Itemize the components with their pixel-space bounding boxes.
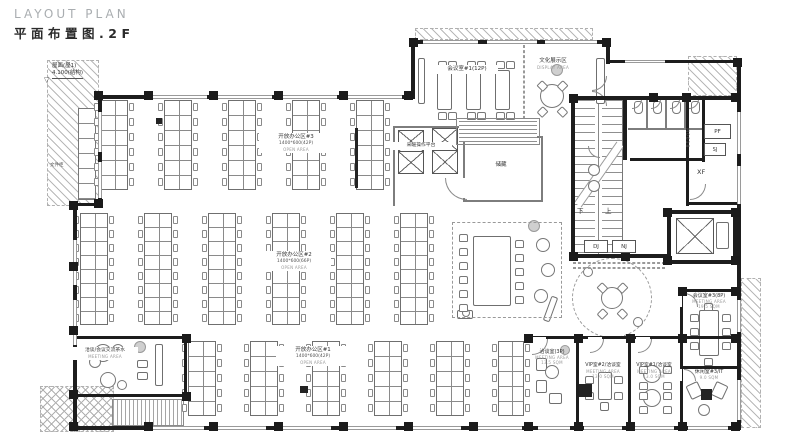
table (137, 372, 148, 380)
column (524, 334, 533, 343)
column (69, 326, 78, 335)
chair (109, 300, 114, 308)
wall (667, 260, 739, 264)
shaft-tag-dj: DJ (584, 240, 608, 253)
chair (722, 342, 731, 350)
partition-wall (541, 136, 543, 202)
door-gap (463, 178, 465, 198)
cross-cell (433, 151, 457, 173)
chair (138, 216, 143, 224)
chair (556, 106, 568, 118)
table (600, 402, 609, 411)
partition-wall (393, 126, 463, 128)
wall (623, 96, 627, 160)
room-label-open2: 开放办公区#2 1400*600(66P) OPEN AREA (257, 251, 331, 271)
chair (193, 148, 198, 156)
stair-up-label: 上 (605, 205, 612, 215)
column (649, 93, 658, 102)
desk-strip (498, 341, 524, 416)
chair (222, 163, 227, 171)
column (404, 91, 413, 100)
chair (222, 178, 227, 186)
desk-strip (436, 341, 464, 416)
chair (237, 216, 242, 224)
table (437, 70, 452, 110)
column (524, 422, 533, 431)
chair (614, 392, 623, 400)
desk-strip (144, 213, 172, 325)
chair (193, 178, 198, 186)
partition-wall (628, 128, 706, 130)
chair (173, 272, 178, 280)
chair (429, 244, 434, 252)
room-name: 文化展示区 (522, 58, 584, 65)
column (339, 422, 348, 431)
chair (257, 118, 262, 126)
window (737, 380, 741, 420)
chair (301, 230, 306, 238)
chair (492, 389, 497, 397)
notes-block (456, 118, 540, 145)
chair (173, 244, 178, 252)
chair (217, 404, 222, 412)
chair (429, 230, 434, 238)
chair (465, 404, 470, 412)
chair (138, 300, 143, 308)
chair (722, 328, 731, 336)
chair (403, 344, 408, 352)
chair (394, 300, 399, 308)
wall (630, 158, 704, 161)
room-name: 采暖操作平台 (392, 143, 450, 149)
roof-label: 屋面(屋1) (52, 63, 83, 70)
chair (286, 103, 291, 111)
chair (663, 392, 672, 400)
column (182, 334, 191, 343)
chair (279, 404, 284, 412)
chair (639, 382, 648, 390)
room-name-en: OPEN AREA (259, 265, 329, 270)
column (69, 422, 78, 431)
chair (129, 103, 134, 111)
chair (394, 244, 399, 252)
column (69, 201, 78, 210)
chair (266, 314, 271, 322)
chair (129, 118, 134, 126)
table (716, 222, 729, 249)
column (182, 392, 191, 401)
chair (690, 314, 699, 322)
table (710, 381, 728, 400)
room-label-talk: 洽谈室(3P) MEETING AREA 13.5 SQM (527, 349, 577, 365)
room-area: 13.0 SQM (577, 374, 629, 379)
window (737, 166, 741, 204)
chair (244, 359, 249, 367)
door-gap (636, 337, 650, 339)
roof-level-value: 4.100(结构) (52, 70, 83, 79)
window (487, 40, 537, 44)
column (209, 422, 218, 431)
chair (266, 230, 271, 238)
window (279, 426, 331, 430)
chair (430, 374, 435, 382)
chair (492, 359, 497, 367)
chair (158, 133, 163, 141)
chair (202, 272, 207, 280)
solid-fixture (701, 389, 712, 400)
desk-strip (374, 341, 402, 416)
chair (244, 389, 249, 397)
chair (109, 314, 114, 322)
chair (385, 163, 390, 171)
column (144, 91, 153, 100)
wall (628, 336, 631, 428)
chair (429, 286, 434, 294)
room-label-open1: 开放办公区#1 1400*600(42P) OPEN AREA (276, 346, 350, 366)
chair (465, 359, 470, 367)
room-name-en: OPEN AREA (278, 360, 348, 365)
chair (330, 314, 335, 322)
table (699, 310, 719, 356)
room-label-culture: 文化展示区 DISPLAY AREA (522, 58, 584, 70)
dashed-line (452, 222, 562, 318)
wall (680, 289, 683, 428)
window (152, 426, 204, 430)
chair (403, 374, 408, 382)
title-english: LAYOUT PLAN (14, 7, 129, 21)
desk-strip (208, 213, 236, 325)
window (217, 95, 272, 99)
window (538, 426, 570, 430)
chair (202, 244, 207, 252)
chair (217, 374, 222, 382)
column (678, 334, 687, 343)
chair (301, 300, 306, 308)
chair (222, 133, 227, 141)
chair (237, 272, 242, 280)
column (404, 422, 413, 431)
chair (266, 300, 271, 308)
window (474, 426, 522, 430)
chair (330, 286, 335, 294)
level-marker-icon: ▽ (44, 76, 49, 85)
chair (182, 404, 187, 412)
window (282, 95, 337, 99)
chair (368, 344, 373, 352)
dashed-line (573, 262, 665, 264)
chair (403, 389, 408, 397)
chair (506, 61, 515, 69)
room-name-en: MEETING AREA (74, 354, 136, 359)
chair (202, 314, 207, 322)
chair (138, 314, 143, 322)
round-fixture (633, 317, 643, 327)
chair (394, 314, 399, 322)
chair (525, 374, 530, 382)
chair (365, 314, 370, 322)
chair (394, 258, 399, 266)
window (423, 40, 478, 44)
chair (129, 148, 134, 156)
chair (465, 344, 470, 352)
shaft-tag-nj: NJ (612, 240, 636, 253)
window (98, 162, 102, 198)
chair (138, 286, 143, 294)
chair (301, 286, 306, 294)
chair (129, 178, 134, 186)
chair (202, 216, 207, 224)
chair (286, 118, 291, 126)
chair (341, 404, 346, 412)
chair (286, 178, 291, 186)
cross-cell (399, 152, 423, 173)
round-fixture (100, 372, 116, 388)
chair (330, 300, 335, 308)
chair (286, 163, 291, 171)
chair (202, 300, 207, 308)
column (663, 208, 672, 217)
column (69, 262, 78, 271)
column (94, 199, 103, 208)
chair (237, 314, 242, 322)
chair (368, 374, 373, 382)
desk-strip (336, 213, 364, 325)
cross-box (398, 130, 424, 174)
chair (138, 272, 143, 280)
stair-down-label: 下 (577, 205, 584, 215)
cross-box (676, 218, 714, 254)
cross-cell (677, 219, 713, 254)
chair (321, 178, 326, 186)
solid-fixture (156, 118, 162, 124)
chair (429, 216, 434, 224)
column (274, 422, 283, 431)
window (347, 95, 402, 99)
chair (663, 406, 672, 414)
chair (341, 389, 346, 397)
chair (690, 328, 699, 336)
column (569, 252, 578, 261)
window (545, 40, 597, 44)
chair (301, 272, 306, 280)
wall (571, 254, 667, 258)
chair (109, 244, 114, 252)
chair (394, 216, 399, 224)
window (688, 426, 728, 430)
chair (279, 374, 284, 382)
chair (525, 404, 530, 412)
chair (237, 244, 242, 252)
chair (429, 258, 434, 266)
desk-strip (400, 213, 428, 325)
chair (193, 163, 198, 171)
chair (257, 178, 262, 186)
chair (429, 272, 434, 280)
column (602, 38, 611, 47)
chair (430, 344, 435, 352)
room-area: 13.5 SQM (527, 360, 577, 365)
column (574, 422, 583, 431)
chair (158, 148, 163, 156)
chair (403, 359, 408, 367)
chair (202, 230, 207, 238)
chair (109, 216, 114, 224)
solid-fixture (300, 386, 308, 393)
room-label-meeting3: 会议室#3(8P) MEETING AREA 19.5 SQM (681, 293, 737, 309)
desk-strip (228, 100, 256, 190)
chair (109, 230, 114, 238)
room-label-vip1: VIP室#1/洽谈室 MEETING AREA 13.0 SQM (627, 363, 681, 379)
window (584, 426, 622, 430)
partition-wall (463, 200, 543, 202)
chair (430, 404, 435, 412)
chair (202, 286, 207, 294)
window (152, 95, 207, 99)
chair (321, 118, 326, 126)
room-label-lounge3: 休闲室#3/IT 9.0 SQM (681, 369, 737, 380)
chair (244, 374, 249, 382)
hatch-area (741, 278, 761, 428)
column (621, 252, 630, 261)
chair (365, 286, 370, 294)
chair (138, 230, 143, 238)
chair (365, 216, 370, 224)
chair (350, 103, 355, 111)
chair (158, 103, 163, 111)
column (731, 93, 740, 102)
chair (173, 300, 178, 308)
table (137, 360, 148, 368)
room-label-storage: 储藏 (488, 162, 514, 169)
round-fixture (117, 380, 127, 390)
chair (279, 389, 284, 397)
table (466, 70, 481, 110)
staircase (573, 100, 623, 254)
chair (330, 230, 335, 238)
chair (536, 106, 548, 118)
door-gap (588, 337, 602, 339)
chair (365, 244, 370, 252)
chair (173, 286, 178, 294)
wall (73, 336, 186, 339)
chair (385, 118, 390, 126)
chair (525, 389, 530, 397)
partition-wall (393, 126, 395, 206)
chair (173, 258, 178, 266)
window (634, 426, 674, 430)
wall (571, 96, 575, 258)
window (214, 426, 266, 430)
room-label-meeting1: 会议室#1(12P) (436, 65, 498, 74)
door-swing (690, 184, 706, 200)
room-area: 19.5 SQM (681, 304, 737, 309)
desk-strip (356, 100, 384, 190)
chair (330, 216, 335, 224)
round-fixture (588, 180, 600, 192)
door-tag: M0618 (684, 128, 689, 168)
chair (158, 178, 163, 186)
window (344, 426, 396, 430)
window (625, 60, 665, 63)
column (731, 256, 740, 265)
chair (237, 286, 242, 294)
chair (385, 103, 390, 111)
round-fixture (698, 404, 710, 416)
window (73, 300, 77, 345)
column (274, 91, 283, 100)
room-area: 13.0 SQM (627, 374, 681, 379)
room-label-open3: 开放办公区#3 1400*600(42P) OPEN AREA (259, 133, 333, 153)
solid-fixture (578, 384, 592, 397)
chair (704, 358, 713, 366)
chair (394, 286, 399, 294)
chair (193, 133, 198, 141)
column (574, 334, 583, 343)
partition-wall (665, 100, 667, 130)
column (409, 38, 418, 47)
chair (306, 404, 311, 412)
page-title: 平面布置图.2F (14, 23, 135, 42)
wall (184, 336, 187, 398)
chair (266, 216, 271, 224)
chair (368, 404, 373, 412)
chair (244, 404, 249, 412)
column (733, 58, 742, 67)
chair (257, 163, 262, 171)
chair (330, 272, 335, 280)
column (94, 91, 103, 100)
room-label-vip2: VIP室#2/洽谈室 MEETING AREA 13.0 SQM (577, 363, 629, 379)
door-swing (590, 339, 604, 353)
chair (365, 300, 370, 308)
solid-fixture (355, 128, 358, 188)
chair (465, 374, 470, 382)
chair (663, 382, 672, 390)
desk-strip (164, 100, 192, 190)
column (731, 334, 740, 343)
wall (667, 210, 739, 214)
chair (403, 404, 408, 412)
chair (492, 374, 497, 382)
chair (306, 374, 311, 382)
chair (129, 133, 134, 141)
chair (368, 359, 373, 367)
partition-wall (646, 100, 648, 130)
column (569, 94, 578, 103)
chair (690, 342, 699, 350)
column (663, 256, 672, 265)
chair (385, 133, 390, 141)
desk-strip (188, 341, 216, 416)
column (626, 422, 635, 431)
chair (173, 216, 178, 224)
chair (385, 178, 390, 186)
chair (394, 230, 399, 238)
chair (722, 314, 731, 322)
window (737, 112, 741, 154)
shaft-tag-sj: SJ (704, 143, 726, 156)
room-name: 储藏 (488, 162, 514, 169)
chair (217, 344, 222, 352)
chair (202, 258, 207, 266)
window (98, 112, 102, 152)
wall (411, 40, 415, 98)
chair (301, 216, 306, 224)
column (69, 390, 78, 399)
column (209, 91, 218, 100)
chair (321, 103, 326, 111)
chair (321, 163, 326, 171)
